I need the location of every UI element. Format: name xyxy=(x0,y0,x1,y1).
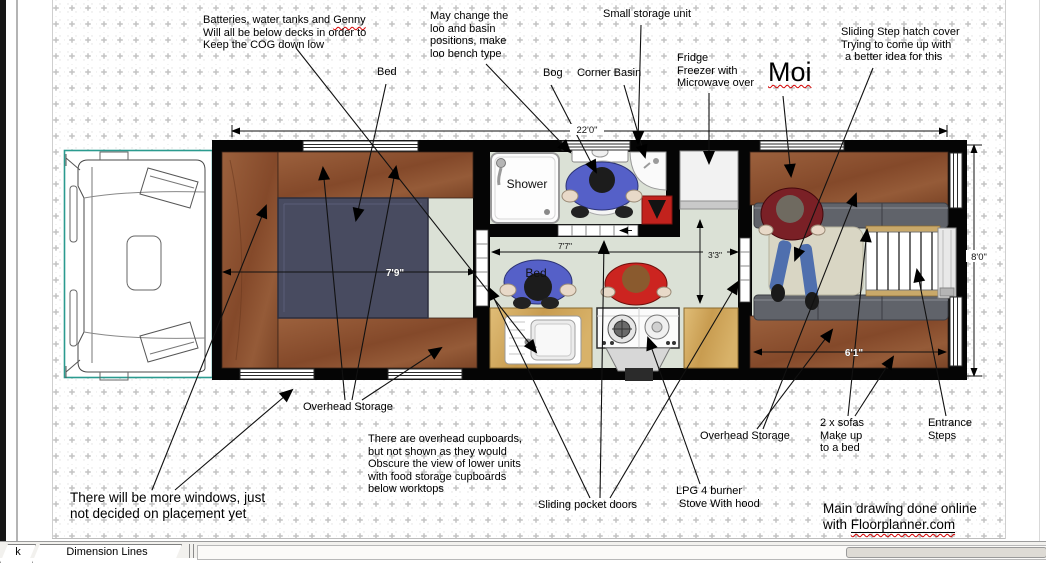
bed-item xyxy=(278,198,428,318)
horizontal-scrollbar-thumb[interactable] xyxy=(846,547,1046,558)
dim-height: 8'0" xyxy=(971,252,987,263)
note-windows-l1: not decided on placement yet xyxy=(70,506,265,522)
note-sofas-l2: to a bed xyxy=(820,442,864,455)
note-may-change-l3: loo bench type xyxy=(430,48,508,61)
note-fridge-l1: Freezer with xyxy=(677,65,754,78)
note-may-change-l1: loo and basin xyxy=(430,23,508,36)
note-bog: Bog xyxy=(543,67,563,80)
status-bar: k Dimension Lines xyxy=(0,541,1046,558)
overhead-storage-top xyxy=(278,152,473,198)
note-batteries-line2: Will all be below decks in order to xyxy=(203,27,366,40)
note-entrance: Entrance Steps xyxy=(928,417,972,442)
note-overhead-storage-right: Overhead Storage xyxy=(700,430,790,443)
bath-mat xyxy=(642,196,672,224)
note-cupboards-l3: with food storage cupboards xyxy=(368,471,522,484)
note-batteries-line3: Keep the COG down low xyxy=(203,39,366,52)
wardrobe xyxy=(222,152,278,368)
note-sofas-l1: Make up xyxy=(820,430,864,443)
right-divider-line xyxy=(1039,0,1040,541)
note-may-change-l0: May change the xyxy=(430,10,508,23)
shower-label: Shower xyxy=(507,177,548,191)
note-small-storage: Small storage unit xyxy=(603,8,691,21)
note-cupboards-l2: Obscure the view of lower units xyxy=(368,458,522,471)
tab-divider[interactable] xyxy=(189,544,194,558)
note-sofas: 2 x sofas Make up to a bed xyxy=(820,417,864,455)
person-on-toilet xyxy=(562,162,642,218)
left-divider-line xyxy=(16,0,18,541)
note-sliding-step-l1: Trying to come up with xyxy=(841,39,960,52)
note-moi: Moi xyxy=(768,58,812,86)
overhead-storage-bottom xyxy=(278,318,477,368)
note-windows: There will be more windows, just not dec… xyxy=(70,490,265,522)
note-entrance-l1: Steps xyxy=(928,430,972,443)
note-cupboards: There are overhead cupboards, but not sh… xyxy=(368,433,522,496)
note-sliding-step: Sliding Step hatch cover Trying to come … xyxy=(841,26,960,64)
note-may-change-l2: positions, make xyxy=(430,35,508,48)
truck-cab-drawing xyxy=(65,151,213,381)
dim-total: 22'0" xyxy=(576,125,597,136)
note-fridge-l2: Microwave over xyxy=(677,77,754,90)
note-may-change: May change the loo and basin positions, … xyxy=(430,10,508,60)
note-credit-l1: Main drawing done online xyxy=(823,501,977,517)
note-batteries: Batteries, water tanks and Genny Will al… xyxy=(203,14,366,52)
note-cupboards-l1: but not shown as they would xyxy=(368,446,522,459)
dim-storage: 3'3" xyxy=(708,250,722,260)
entrance-steps xyxy=(866,226,940,296)
note-windows-l0: There will be more windows, just xyxy=(70,490,265,506)
note-sliding-step-l0: Sliding Step hatch cover xyxy=(841,26,960,39)
sink-counter xyxy=(490,308,592,368)
note-corner-basin: Corner Basin xyxy=(577,67,641,80)
note-batteries-genny: Genny xyxy=(333,14,365,26)
drawing-canvas: Shower Bed 22'0" 7'7" 3'3" 8'0" 7'9" 6'1… xyxy=(0,0,1046,557)
note-sliding-doors: Sliding pocket doors xyxy=(538,499,637,512)
note-fridge-l0: Fridge xyxy=(677,52,754,65)
note-sliding-step-l2: a better idea for this xyxy=(841,51,960,64)
floorplanner-screenshot: { "annotations": { "batteries": { "line1… xyxy=(0,0,1046,557)
shower-drain-icon xyxy=(544,209,550,215)
left-edge-strip xyxy=(0,0,6,541)
note-lpg-l1: Stove With hood xyxy=(676,498,760,511)
sheet-tab-dimension-lines[interactable]: Dimension Lines xyxy=(32,544,182,563)
note-lpg-l0: LPG 4 burner xyxy=(676,485,760,498)
lounge-storage-bottom xyxy=(750,316,948,368)
note-credit-l2: with Floorplanner.com xyxy=(823,517,977,533)
note-lpg: LPG 4 burner Stove With hood xyxy=(676,485,760,510)
horizontal-scrollbar[interactable] xyxy=(197,545,1046,560)
note-overhead-storage-left: Overhead Storage xyxy=(303,401,393,414)
sheet-tab-partial[interactable]: k xyxy=(0,544,36,563)
note-cupboards-l4: below worktops xyxy=(368,483,522,496)
note-cupboards-l0: There are overhead cupboards, xyxy=(368,433,522,446)
sheet-tab-partial-label: k xyxy=(15,546,21,558)
note-entrance-l0: Entrance xyxy=(928,417,972,430)
note-batteries-line1: Batteries, water tanks and xyxy=(203,14,333,26)
note-moi-word: Moi xyxy=(768,57,812,87)
note-credit: Main drawing done online with Floorplann… xyxy=(823,501,977,533)
sheet-tab-dimension-lines-label: Dimension Lines xyxy=(66,546,147,558)
bed-item-label: Bed xyxy=(525,266,546,280)
note-fridge: Fridge Freezer with Microwave over xyxy=(677,52,754,90)
entrance-door xyxy=(938,228,956,298)
dim-sofa: 6'1" xyxy=(845,348,864,359)
dim-bed: 7'9" xyxy=(386,268,405,279)
note-bed: Bed xyxy=(377,66,397,79)
note-sofas-l0: 2 x sofas xyxy=(820,417,864,430)
dim-hall: 7'7" xyxy=(558,241,572,251)
floorplanner-link[interactable]: Floorplanner.com xyxy=(851,517,955,533)
note-credit-with: with xyxy=(823,517,851,532)
